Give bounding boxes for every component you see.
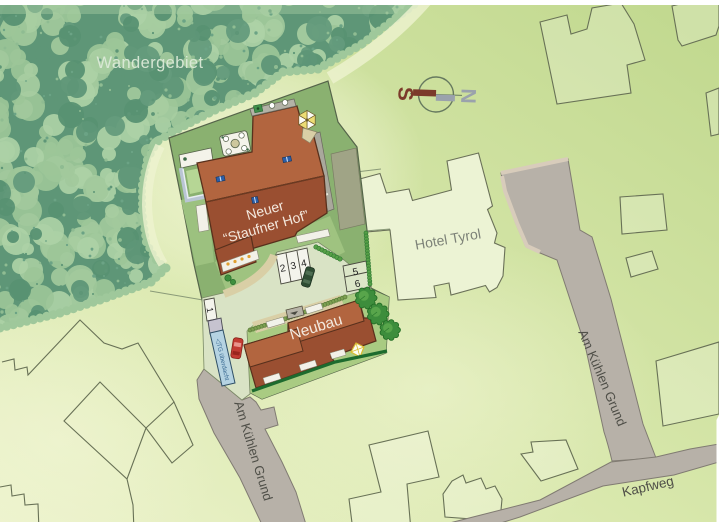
- svg-text:S: S: [393, 87, 416, 102]
- svg-text:N: N: [456, 88, 480, 104]
- svg-text:Wandergebiet: Wandergebiet: [97, 54, 204, 72]
